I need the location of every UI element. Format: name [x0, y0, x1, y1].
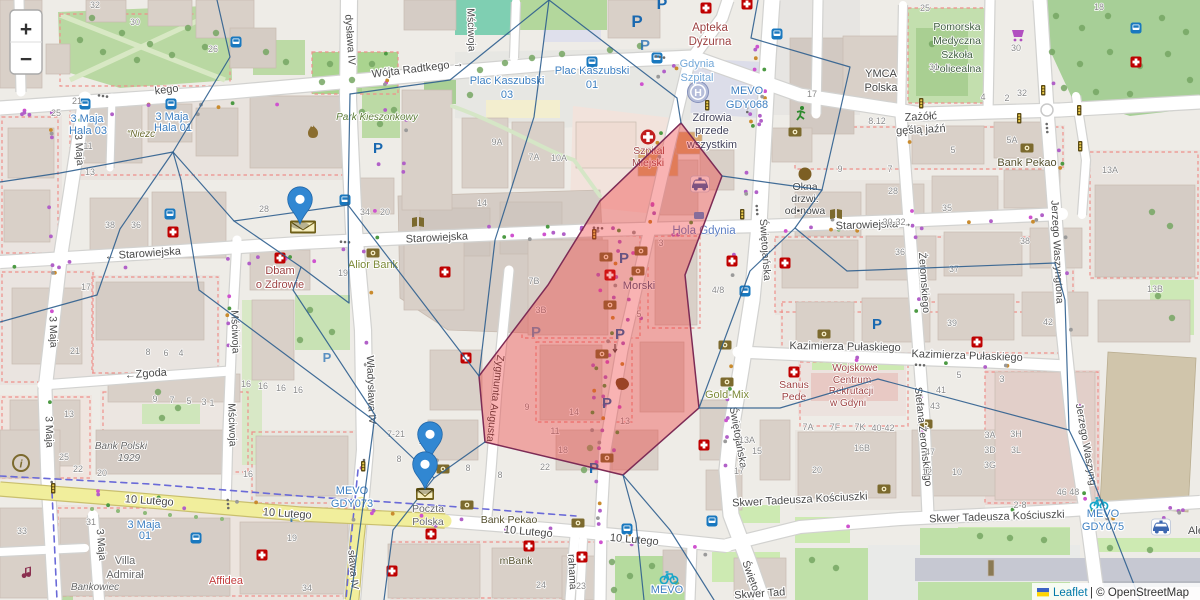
- svg-text:“Niezc: “Niezc: [127, 129, 155, 140]
- svg-text:43: 43: [930, 401, 940, 411]
- svg-text:35: 35: [942, 203, 952, 213]
- svg-text:16: 16: [241, 379, 251, 389]
- svg-text:20: 20: [812, 465, 822, 475]
- svg-text:Polska: Polska: [864, 82, 898, 94]
- svg-text:28: 28: [259, 204, 269, 214]
- svg-text:13A: 13A: [739, 435, 755, 445]
- svg-text:9: 9: [837, 164, 842, 174]
- svg-text:P: P: [373, 140, 383, 157]
- svg-text:Plac Kaszubski: Plac Kaszubski: [470, 75, 545, 87]
- svg-text:3 Maja: 3 Maja: [42, 416, 55, 448]
- svg-text:Sanus: Sanus: [779, 379, 809, 391]
- svg-text:13: 13: [64, 409, 74, 419]
- svg-text:37: 37: [949, 264, 959, 274]
- svg-text:5: 5: [956, 370, 961, 380]
- svg-text:Plac Kaszubski: Plac Kaszubski: [555, 65, 630, 77]
- svg-text:8: 8: [497, 470, 502, 480]
- svg-text:+: +: [20, 18, 32, 41]
- svg-text:14: 14: [477, 198, 487, 208]
- svg-text:13B: 13B: [1147, 284, 1163, 294]
- svg-text:3 Maja: 3 Maja: [70, 113, 104, 125]
- svg-text:Policealna: Policealna: [933, 63, 982, 75]
- svg-text:Park Kieszonkowy: Park Kieszonkowy: [336, 112, 419, 123]
- svg-text:21: 21: [70, 346, 80, 356]
- svg-text:01: 01: [586, 79, 598, 91]
- svg-text:47: 47: [925, 447, 935, 457]
- svg-text:GDY075: GDY075: [1082, 521, 1124, 533]
- svg-text:34: 34: [360, 207, 370, 217]
- svg-text:Hala 01: Hala 01: [154, 122, 192, 134]
- svg-text:19: 19: [287, 533, 297, 543]
- svg-text:3 Maja: 3 Maja: [46, 316, 59, 348]
- svg-text:Medyczna: Medyczna: [933, 35, 981, 47]
- svg-text:01: 01: [139, 530, 151, 542]
- svg-text:17: 17: [807, 89, 817, 99]
- svg-text:7B: 7B: [528, 276, 539, 286]
- svg-text:16B: 16B: [854, 443, 870, 453]
- svg-text:41: 41: [936, 385, 946, 395]
- svg-text:4: 4: [178, 348, 183, 358]
- svg-text:11: 11: [83, 141, 92, 151]
- svg-text:26: 26: [208, 44, 218, 54]
- svg-text:3: 3: [201, 397, 206, 407]
- svg-text:Hala 03: Hala 03: [69, 125, 107, 137]
- svg-text:28: 28: [888, 186, 898, 196]
- svg-text:17: 17: [81, 282, 91, 292]
- svg-text:38: 38: [105, 220, 115, 230]
- svg-text:H: H: [694, 87, 702, 99]
- svg-text:8.12: 8.12: [868, 116, 886, 126]
- svg-text:drzwi:: drzwi:: [791, 193, 818, 205]
- svg-text:2-8: 2-8: [1013, 500, 1026, 510]
- svg-text:MEVO: MEVO: [336, 485, 369, 497]
- svg-text:Affidea: Affidea: [209, 575, 244, 587]
- svg-text:16: 16: [243, 469, 253, 479]
- svg-text:32: 32: [90, 0, 100, 10]
- svg-text:Apteka: Apteka: [692, 22, 728, 34]
- svg-text:6: 6: [163, 348, 168, 358]
- svg-text:16: 16: [276, 383, 286, 393]
- svg-text:46 48: 46 48: [1057, 487, 1080, 497]
- svg-text:Pomorska: Pomorska: [933, 21, 980, 33]
- svg-text:17: 17: [734, 466, 744, 476]
- svg-text:31: 31: [86, 517, 96, 527]
- svg-text:33: 33: [17, 526, 27, 536]
- svg-text:3L: 3L: [1011, 445, 1021, 455]
- svg-text:−: −: [20, 48, 32, 71]
- svg-text:3H: 3H: [1010, 429, 1022, 439]
- svg-text:7K: 7K: [854, 422, 865, 432]
- svg-text:3G: 3G: [984, 460, 996, 470]
- svg-text:GDY068: GDY068: [726, 99, 768, 111]
- svg-text:21: 21: [72, 96, 82, 106]
- svg-text:5: 5: [950, 145, 955, 155]
- svg-text:Polska: Polska: [412, 516, 444, 528]
- svg-text:38: 38: [1020, 236, 1030, 246]
- svg-text:P: P: [657, 0, 668, 13]
- svg-text:7A: 7A: [802, 422, 813, 432]
- svg-text:Okna: Okna: [792, 181, 817, 193]
- svg-text:Ale: Ale: [1188, 525, 1200, 537]
- svg-text:przede: przede: [695, 125, 729, 137]
- svg-text:10A: 10A: [551, 153, 567, 163]
- svg-text:9: 9: [152, 394, 157, 404]
- svg-text:7F: 7F: [830, 422, 841, 432]
- svg-text:7A: 7A: [528, 152, 539, 162]
- svg-text:20: 20: [97, 468, 107, 478]
- svg-text:MEVO: MEVO: [1087, 508, 1120, 520]
- svg-text:mBank: mBank: [500, 555, 533, 567]
- svg-text:3: 3: [999, 374, 1004, 384]
- svg-text:9A: 9A: [491, 137, 502, 147]
- svg-text:YMCA: YMCA: [865, 68, 897, 80]
- svg-text:Centrum: Centrum: [833, 375, 871, 386]
- svg-text:Gdynia: Gdynia: [680, 58, 716, 70]
- svg-text:1929: 1929: [118, 453, 141, 464]
- svg-text:30: 30: [130, 17, 140, 27]
- svg-text:Zdrowia: Zdrowia: [692, 112, 732, 124]
- svg-text:1: 1: [209, 398, 214, 408]
- svg-text:18: 18: [1094, 2, 1104, 12]
- svg-text:16: 16: [293, 385, 303, 395]
- svg-text:22: 22: [540, 462, 550, 472]
- svg-text:03: 03: [501, 89, 513, 101]
- svg-text:Leaflet: Leaflet: [1053, 587, 1088, 599]
- svg-text:24: 24: [536, 580, 546, 590]
- svg-text:Dbam: Dbam: [265, 265, 294, 277]
- svg-text:10: 10: [952, 467, 962, 477]
- svg-text:P: P: [872, 316, 882, 333]
- svg-text:Szpital: Szpital: [680, 72, 713, 84]
- svg-text:19: 19: [338, 268, 348, 278]
- svg-text:7: 7: [169, 395, 174, 405]
- svg-text:MEVO: MEVO: [731, 85, 764, 97]
- svg-text:Bank Polski: Bank Polski: [95, 441, 148, 452]
- svg-text:32: 32: [1017, 88, 1027, 98]
- svg-text:o Zdrowie: o Zdrowie: [256, 279, 304, 291]
- svg-text:8: 8: [396, 454, 401, 464]
- svg-text:39: 39: [947, 318, 957, 328]
- svg-text:36: 36: [895, 247, 905, 257]
- svg-text:16: 16: [258, 381, 268, 391]
- svg-text:25: 25: [59, 452, 69, 462]
- svg-text:8: 8: [465, 463, 470, 473]
- svg-text:4: 4: [980, 92, 985, 102]
- svg-text:P: P: [323, 350, 332, 365]
- svg-text:2: 2: [1004, 93, 1009, 103]
- svg-text:7: 7: [887, 164, 892, 174]
- svg-text:3D: 3D: [984, 445, 996, 455]
- svg-text:13A: 13A: [1102, 165, 1118, 175]
- svg-text:22: 22: [73, 464, 83, 474]
- svg-text:MEVO: MEVO: [651, 584, 684, 596]
- svg-text:Skwer Tad: Skwer Tad: [734, 586, 786, 600]
- svg-text:Bankowiec: Bankowiec: [71, 582, 119, 593]
- svg-text:Gold-Mix: Gold-Mix: [705, 389, 750, 401]
- svg-text:5: 5: [186, 396, 191, 406]
- svg-text:5A: 5A: [1006, 135, 1017, 145]
- svg-text:GDY073: GDY073: [331, 498, 373, 510]
- svg-text:Bank Pekao: Bank Pekao: [481, 514, 538, 526]
- svg-text:30-32: 30-32: [882, 217, 905, 227]
- svg-text:P: P: [640, 37, 650, 54]
- svg-text:Mściwoja: Mściwoja: [464, 8, 478, 52]
- svg-text:P: P: [631, 12, 642, 31]
- svg-text:Wojskowe: Wojskowe: [832, 363, 878, 374]
- svg-text:Zażółć: Zażółć: [904, 110, 937, 124]
- svg-text:Villa: Villa: [115, 555, 136, 567]
- svg-text:42: 42: [1043, 317, 1053, 327]
- svg-text:8: 8: [145, 347, 150, 357]
- svg-text:36: 36: [131, 220, 141, 230]
- svg-text:31: 31: [929, 62, 939, 72]
- svg-text:Mściwoja: Mściwoja: [225, 403, 239, 447]
- svg-text:od•nowa: od•nowa: [785, 205, 826, 217]
- svg-text:w Gdyni: w Gdyni: [829, 398, 866, 409]
- svg-text:4/8: 4/8: [712, 285, 725, 295]
- svg-text:Bank Pekao: Bank Pekao: [997, 157, 1056, 169]
- svg-text:25: 25: [920, 3, 930, 13]
- svg-text:15: 15: [752, 446, 762, 456]
- svg-text:Dyżurna: Dyżurna: [689, 36, 732, 48]
- svg-text:Szkoła: Szkoła: [941, 49, 973, 61]
- svg-text:12: 12: [922, 467, 932, 477]
- svg-text:Admirał: Admirał: [106, 569, 144, 581]
- svg-text:3A: 3A: [984, 430, 995, 440]
- svg-text:Kazimierza Pułaskiego: Kazimierza Pułaskiego: [789, 340, 900, 354]
- svg-text:7-21: 7-21: [387, 429, 405, 439]
- svg-text:20: 20: [380, 207, 390, 217]
- svg-text:40-42: 40-42: [871, 423, 894, 433]
- svg-text:Poczta: Poczta: [412, 503, 444, 515]
- svg-text:34: 34: [302, 583, 312, 593]
- svg-text:| © OpenStreetMap: | © OpenStreetMap: [1090, 587, 1189, 599]
- svg-text:30: 30: [1011, 43, 1021, 53]
- svg-text:23: 23: [576, 581, 586, 591]
- svg-text:25: 25: [51, 108, 61, 118]
